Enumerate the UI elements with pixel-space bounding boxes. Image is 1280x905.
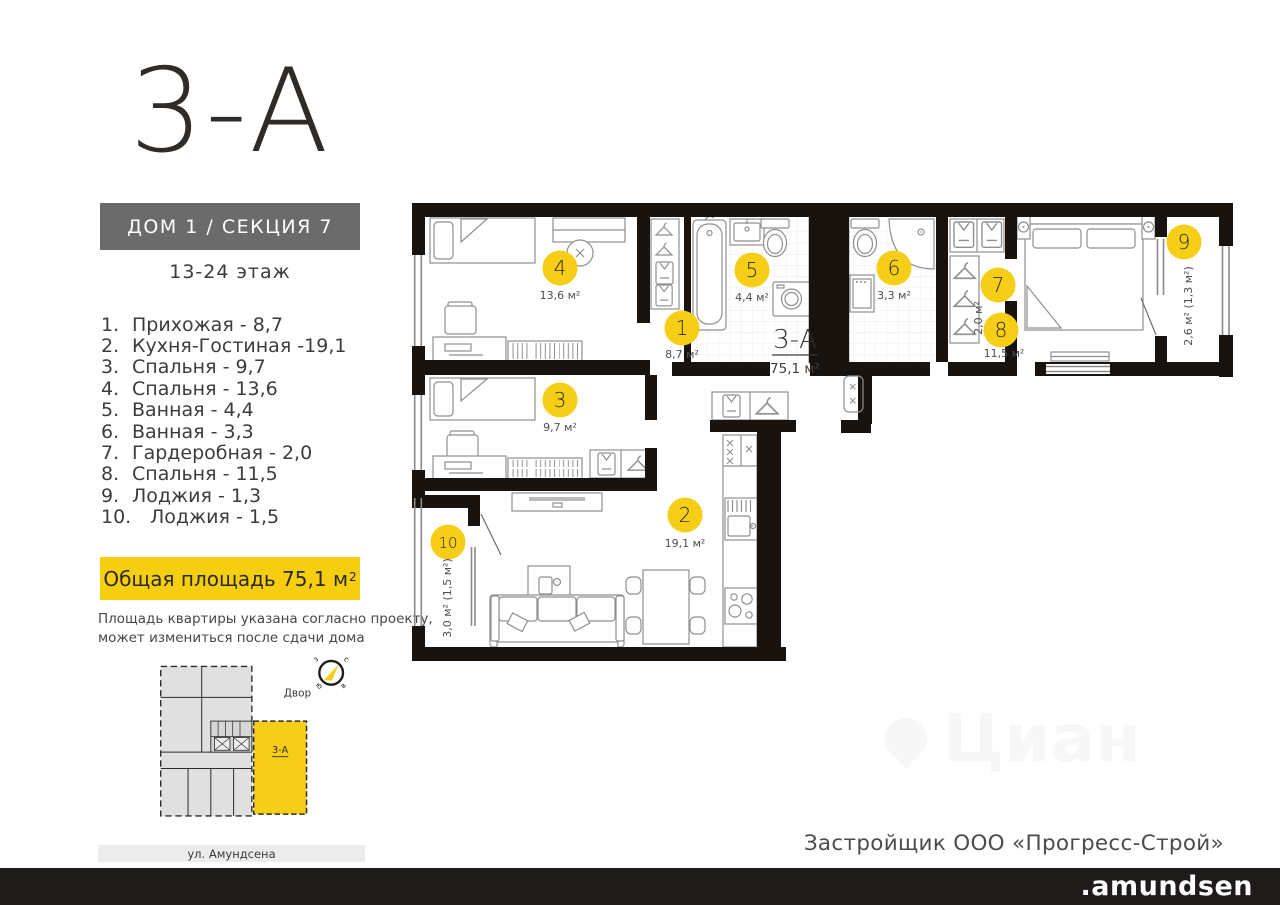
brand-logo: .amundsen xyxy=(1081,868,1254,905)
sofa xyxy=(490,595,624,648)
svg-text:8: 8 xyxy=(995,318,1008,342)
svg-text:с: с xyxy=(342,655,351,664)
bed-double xyxy=(1025,215,1143,330)
room-list-item: 3.Спальня - 9,7 xyxy=(101,357,346,378)
room-marker-4: 4 13,6 м² xyxy=(540,251,581,303)
svg-text:3: 3 xyxy=(554,388,567,412)
room-list-item: 1.Прихожая - 8,7 xyxy=(101,314,346,335)
door-swing xyxy=(481,514,501,555)
cian-pin-icon xyxy=(876,709,935,768)
svg-text:1: 1 xyxy=(676,316,689,340)
svg-text:3,3 м²: 3,3 м² xyxy=(877,289,911,302)
svg-text:6: 6 xyxy=(888,256,901,280)
courtyard-label: Двор xyxy=(284,687,312,699)
room-list-item: 7.Гардеробная - 2,0 xyxy=(101,442,346,463)
flyer-page: 3-А ДОМ 1 / СЕКЦИЯ 7 13-24 этаж 1.Прихож… xyxy=(0,0,1280,905)
svg-text:3,0 м² (1,5 м²): 3,0 м² (1,5 м²) xyxy=(441,558,454,637)
room-marker-2: 2 19,1 м² xyxy=(665,498,706,551)
room-list-item: 4.Спальня - 13,6 xyxy=(101,378,346,399)
svg-text:11,5 м²: 11,5 м² xyxy=(984,347,1025,360)
highlighted-unit xyxy=(254,721,307,814)
dining-set xyxy=(626,570,705,644)
vanity-cabinet xyxy=(850,275,874,312)
floors-range: 13-24 этаж xyxy=(100,261,360,283)
room-marker-8: 8 11,5 м² xyxy=(984,313,1025,361)
minimap-unit-label: 3-А xyxy=(272,745,289,756)
hall-closet xyxy=(712,392,788,420)
desk-chair xyxy=(445,302,476,334)
toilet xyxy=(761,219,789,257)
dresser xyxy=(1051,352,1109,361)
svg-text:ю: ю xyxy=(314,680,325,691)
room-list-item: 8.Спальня - 11,5 xyxy=(101,464,346,485)
room-marker-5: 5 4,4 м² xyxy=(735,253,770,305)
room-list-item: 6.Ванная - 3,3 xyxy=(101,421,346,442)
svg-text:75,1 м²: 75,1 м² xyxy=(770,361,820,377)
svg-text:з: з xyxy=(311,655,320,664)
svg-text:13,6 м²: 13,6 м² xyxy=(540,289,581,302)
washing-machine xyxy=(773,282,810,316)
disclaimer: Площадь квартиры указана согласно проект… xyxy=(98,610,433,647)
footer-bar: .amundsen xyxy=(0,868,1280,905)
svg-text:4,4 м²: 4,4 м² xyxy=(735,291,769,304)
room-marker-6: 6 3,3 м² xyxy=(877,251,912,303)
nightstand xyxy=(1017,215,1030,239)
room-list: 1.Прихожая - 8,7 2.Кухня-Гостиная -19,1 … xyxy=(101,314,346,528)
kitchen-sink-fridge xyxy=(725,498,757,540)
nightstand xyxy=(1142,215,1155,239)
room-list-item: 10.Лоджия - 1,5 xyxy=(101,507,346,528)
building-section-label: ДОМ 1 / СЕКЦИЯ 7 xyxy=(127,216,333,238)
building-section-badge: ДОМ 1 / СЕКЦИЯ 7 xyxy=(100,203,360,250)
room-marker-9: 9 2,6 м² (1,3 м²) xyxy=(1167,225,1202,346)
room-list-item: 2.Кухня-Гостиная -19,1 xyxy=(101,335,346,356)
hall-closet-tall xyxy=(651,219,679,309)
room-marker-1: 1 8,7 м² xyxy=(665,311,700,362)
svg-text:2: 2 xyxy=(679,503,692,527)
toilet xyxy=(851,219,879,257)
room-marker-10: 10 3,0 м² (1,5 м²) xyxy=(431,525,466,638)
room-list-item: 5.Ванная - 4,4 xyxy=(101,400,346,421)
wardrobe xyxy=(590,450,653,478)
room-marker-3: 3 9,7 м² xyxy=(543,383,578,435)
svg-text:2,0 м²: 2,0 м² xyxy=(972,301,985,335)
tv-stand xyxy=(512,493,602,511)
street-label-bar: ул. Амундсена xyxy=(98,845,365,862)
apartment-plan-label: 3-А 75,1 м² xyxy=(770,325,820,377)
desk xyxy=(433,456,506,479)
svg-text:8,7 м²: 8,7 м² xyxy=(665,348,699,361)
stove xyxy=(725,588,757,624)
svg-text:9: 9 xyxy=(1178,230,1191,254)
developer-label: Застройщик ООО «Прогресс-Строй» xyxy=(804,831,1224,856)
bed-single xyxy=(430,378,535,420)
bookshelf xyxy=(508,341,582,362)
svg-text:3-А: 3-А xyxy=(773,325,817,355)
svg-text:2,6 м² (1,3 м²): 2,6 м² (1,3 м²) xyxy=(1182,266,1195,345)
room-list-item: 9.Лоджия - 1,3 xyxy=(101,485,346,506)
total-area-badge: Общая площадь 75,1 м2 xyxy=(100,557,360,600)
svg-text:5: 5 xyxy=(746,258,759,282)
svg-text:в: в xyxy=(338,681,347,690)
bathtub xyxy=(693,216,726,330)
svg-text:7: 7 xyxy=(992,273,1005,297)
total-area-label: Общая площадь 75,1 м xyxy=(103,567,348,591)
svg-text:10: 10 xyxy=(438,534,457,552)
cian-watermark: Циан xyxy=(885,700,1141,777)
floor-plan: 3-А 75,1 м² 1 8,7 м² 2 19,1 м² 3 9,7 м² … xyxy=(405,198,1240,670)
bookshelf xyxy=(508,458,582,479)
svg-text:4: 4 xyxy=(554,256,567,280)
compass-icon: з с ю в xyxy=(311,655,351,691)
svg-text:19,1 м²: 19,1 м² xyxy=(665,537,706,550)
apartment-title: 3-А xyxy=(92,44,368,179)
sink xyxy=(730,219,764,245)
bed-single xyxy=(430,218,535,263)
desk xyxy=(433,337,506,362)
building-minimap: 3-А Двор з с ю в xyxy=(95,650,385,846)
svg-text:9,7 м²: 9,7 м² xyxy=(543,421,577,434)
